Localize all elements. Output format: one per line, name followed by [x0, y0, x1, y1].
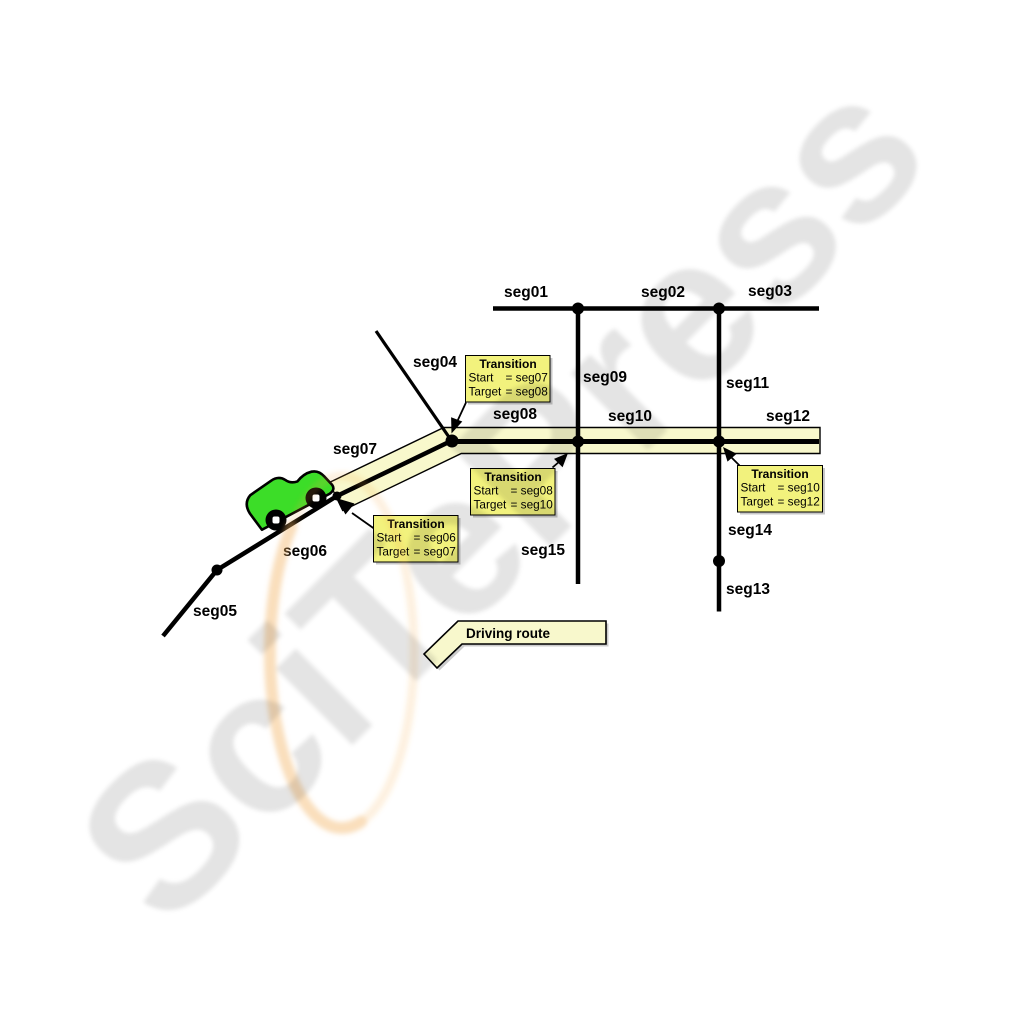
svg-text:seg13: seg13 — [726, 581, 770, 598]
svg-text:Target: Target — [741, 495, 775, 509]
svg-text:Transition: Transition — [751, 467, 808, 481]
svg-text:= seg12: = seg12 — [778, 495, 820, 509]
svg-text:seg14: seg14 — [728, 522, 772, 539]
svg-text:seg07: seg07 — [333, 441, 377, 458]
svg-text:seg04: seg04 — [413, 354, 457, 371]
svg-text:Start: Start — [741, 481, 767, 495]
svg-text:seg12: seg12 — [766, 408, 810, 425]
svg-text:= seg10: = seg10 — [778, 481, 821, 495]
